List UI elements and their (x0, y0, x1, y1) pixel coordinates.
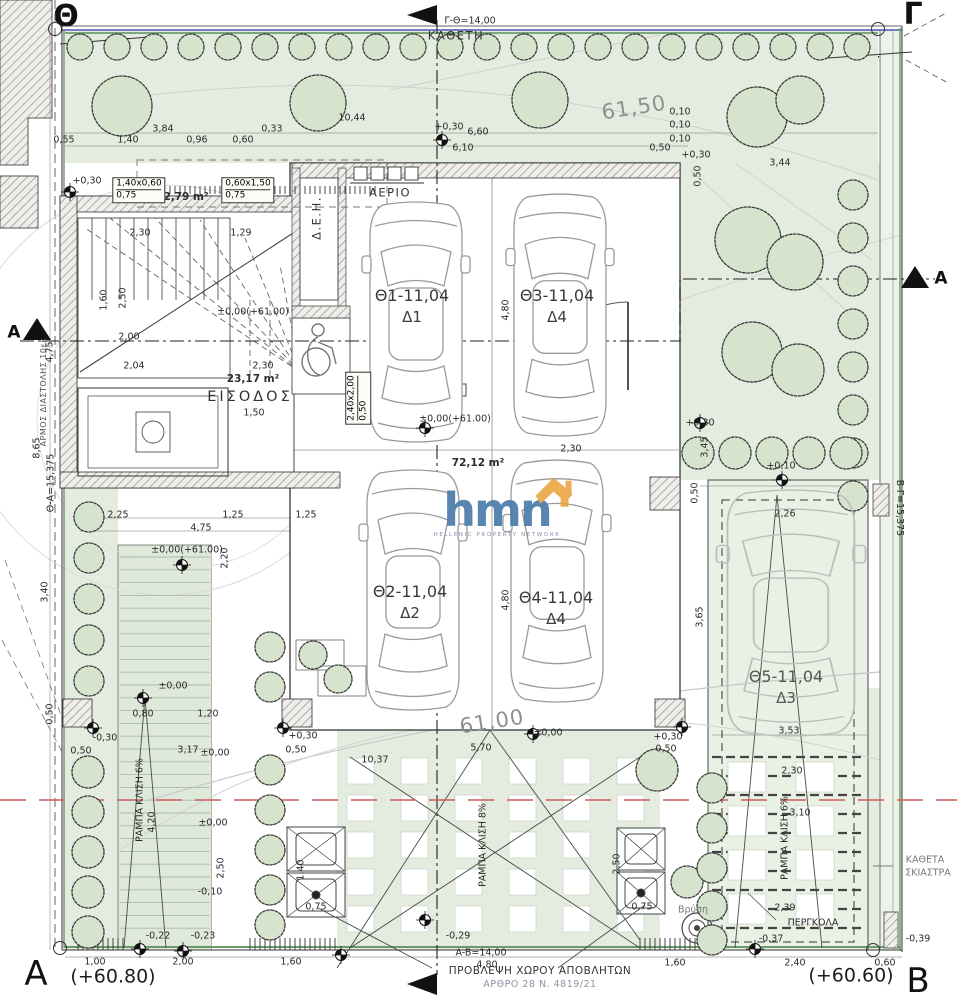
tree (838, 180, 868, 210)
waste-note-line2: ΑΡΘΡΟ 28 Ν. 4819/21 (449, 979, 632, 990)
paver (455, 795, 482, 821)
section-triangle-right (901, 266, 929, 288)
paver (347, 795, 374, 821)
tree (474, 34, 500, 60)
tree (363, 34, 389, 60)
garage-slab (290, 163, 680, 730)
tree (697, 853, 727, 883)
tree (767, 234, 823, 290)
tree (437, 34, 463, 60)
house-roof-icon (532, 474, 574, 508)
tree (92, 76, 152, 136)
waste-provision-note: ΠΡΟΒΛΕΨΗ ΧΩΡΟΥ ΑΠΟΒΛΗΤΩΝ ΑΡΘΡΟ 28 Ν. 481… (449, 965, 632, 990)
tree (659, 34, 685, 60)
tree (289, 34, 315, 60)
tree (636, 749, 678, 791)
tree (772, 344, 824, 396)
tree (324, 665, 352, 693)
paver (347, 758, 374, 784)
tree (74, 625, 104, 655)
tree (622, 34, 648, 60)
north-flag-top (407, 5, 437, 25)
tree (697, 773, 727, 803)
paver (563, 832, 590, 858)
tree (838, 266, 868, 296)
paver (728, 894, 766, 924)
waste-note-line1: ΠΡΟΒΛΕΨΗ ΧΩΡΟΥ ΑΠΟΒΛΗΤΩΝ (449, 965, 632, 977)
tree (696, 34, 722, 60)
paver (347, 906, 374, 932)
paver (796, 806, 834, 836)
tree (733, 34, 759, 60)
tree (326, 34, 352, 60)
tree (793, 437, 825, 469)
tree (807, 34, 833, 60)
tree (838, 309, 868, 339)
tree (299, 641, 327, 669)
tree (255, 632, 285, 662)
tree (252, 34, 278, 60)
tree (104, 34, 130, 60)
paver (347, 869, 374, 895)
paver (796, 894, 834, 924)
tree (178, 34, 204, 60)
paver (617, 795, 644, 821)
tree (512, 72, 568, 128)
paver (509, 795, 536, 821)
tree (74, 584, 104, 614)
tree (830, 437, 862, 469)
tree (74, 666, 104, 696)
paver (509, 906, 536, 932)
paver (401, 795, 428, 821)
tree (72, 876, 104, 908)
paver (563, 869, 590, 895)
tree (255, 755, 285, 785)
tree (141, 34, 167, 60)
paver (347, 832, 374, 858)
tree (776, 76, 824, 124)
tree (697, 925, 727, 955)
tree (290, 75, 346, 131)
tree (255, 672, 285, 702)
tree (255, 910, 285, 940)
section-triangle-left (23, 318, 51, 340)
car (506, 194, 614, 436)
tree (255, 795, 285, 825)
tree (511, 34, 537, 60)
tree (255, 875, 285, 905)
paver (728, 762, 766, 792)
paver (509, 832, 536, 858)
site-plan-drawing: hmn HELLENIC PROPERTY NETWORK Θ (+61.39)… (0, 0, 957, 1000)
paver (563, 758, 590, 784)
flag-bottom (407, 973, 437, 995)
tree (838, 352, 868, 382)
tree (72, 756, 104, 788)
tree (682, 437, 714, 469)
tree (255, 835, 285, 865)
car (362, 202, 470, 442)
paver (455, 906, 482, 932)
wheelchair-area (292, 306, 350, 394)
tree (838, 223, 868, 253)
paver (455, 869, 482, 895)
paver (796, 762, 834, 792)
tree (72, 796, 104, 828)
tree (756, 437, 788, 469)
paver (401, 758, 428, 784)
paver (455, 758, 482, 784)
paver (455, 832, 482, 858)
paver (509, 869, 536, 895)
paver (401, 832, 428, 858)
paver (401, 869, 428, 895)
paver (563, 906, 590, 932)
tree (72, 836, 104, 868)
tree (74, 502, 104, 532)
hmn-logo: hmn HELLENIC PROPERTY NETWORK (434, 490, 561, 538)
tree (215, 34, 241, 60)
tree (697, 891, 727, 921)
tree (719, 437, 751, 469)
tree (844, 34, 870, 60)
tree (697, 813, 727, 843)
tree (548, 34, 574, 60)
tree (67, 34, 93, 60)
tree (74, 543, 104, 573)
tree (585, 34, 611, 60)
tree (400, 34, 426, 60)
paver (728, 850, 766, 880)
tree (72, 916, 104, 948)
tree (770, 34, 796, 60)
tree (838, 395, 868, 425)
